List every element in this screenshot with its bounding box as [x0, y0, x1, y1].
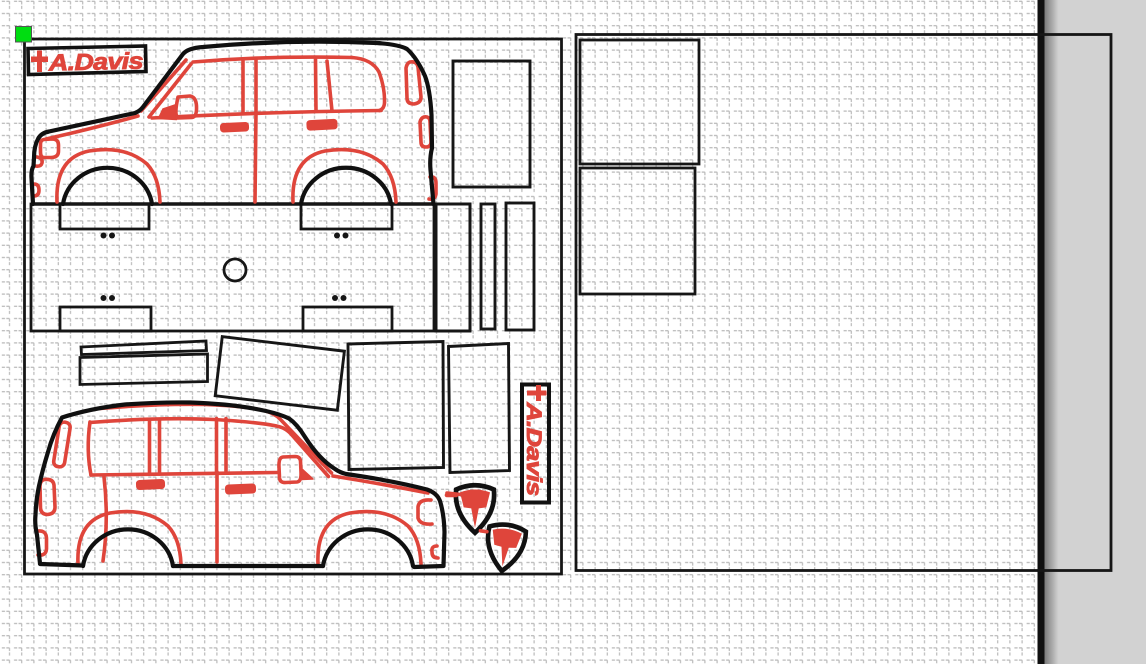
- svg-text:A.Davis: A.Davis: [47, 48, 143, 76]
- svg-text:A.Davis: A.Davis: [522, 401, 545, 495]
